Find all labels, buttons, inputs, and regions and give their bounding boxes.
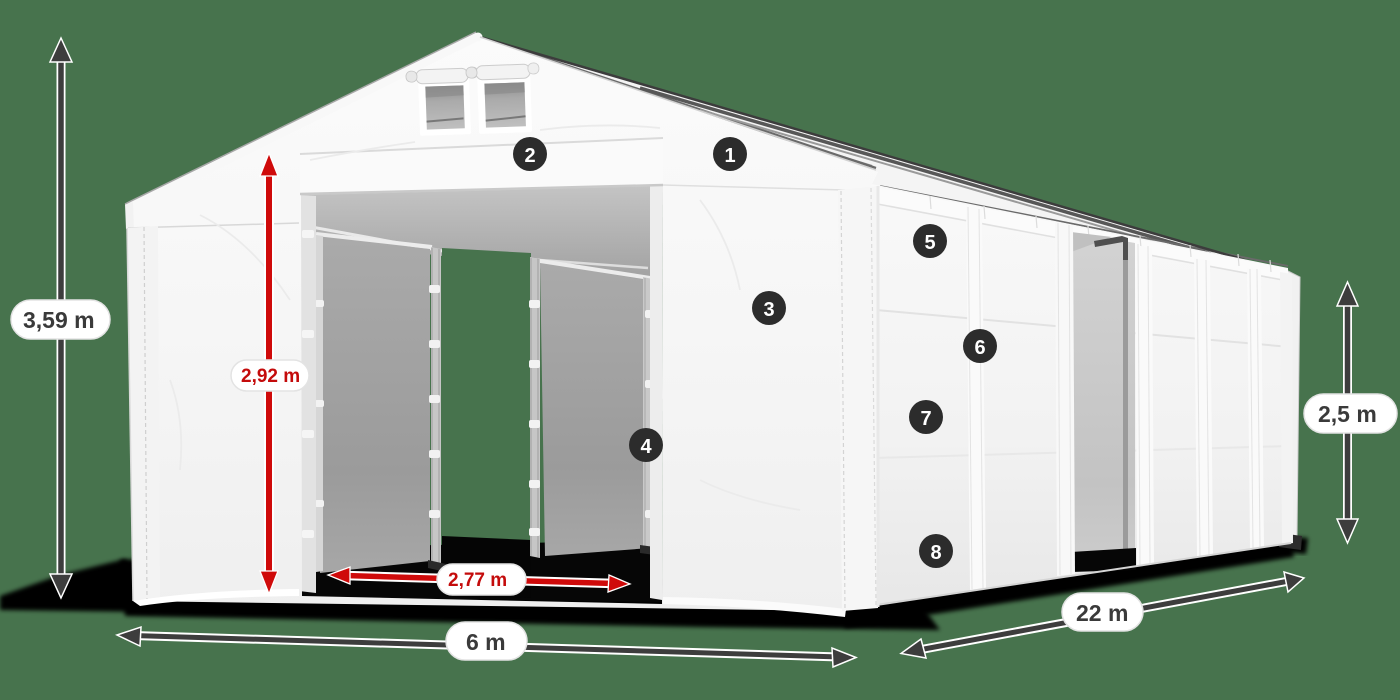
svg-text:2,77 m: 2,77 m bbox=[448, 570, 507, 591]
svg-text:7: 7 bbox=[920, 408, 931, 430]
svg-text:5: 5 bbox=[924, 232, 935, 254]
svg-text:4: 4 bbox=[640, 436, 652, 458]
svg-text:6: 6 bbox=[974, 337, 985, 359]
svg-text:6 m: 6 m bbox=[466, 629, 506, 655]
svg-text:2,5 m: 2,5 m bbox=[1318, 401, 1377, 427]
svg-text:2,92 m: 2,92 m bbox=[241, 366, 300, 387]
svg-text:22 m: 22 m bbox=[1076, 600, 1128, 626]
svg-text:3,59 m: 3,59 m bbox=[23, 307, 95, 333]
svg-text:1: 1 bbox=[724, 145, 735, 167]
svg-text:3: 3 bbox=[763, 299, 774, 321]
svg-text:8: 8 bbox=[930, 542, 941, 564]
svg-text:2: 2 bbox=[524, 145, 535, 167]
